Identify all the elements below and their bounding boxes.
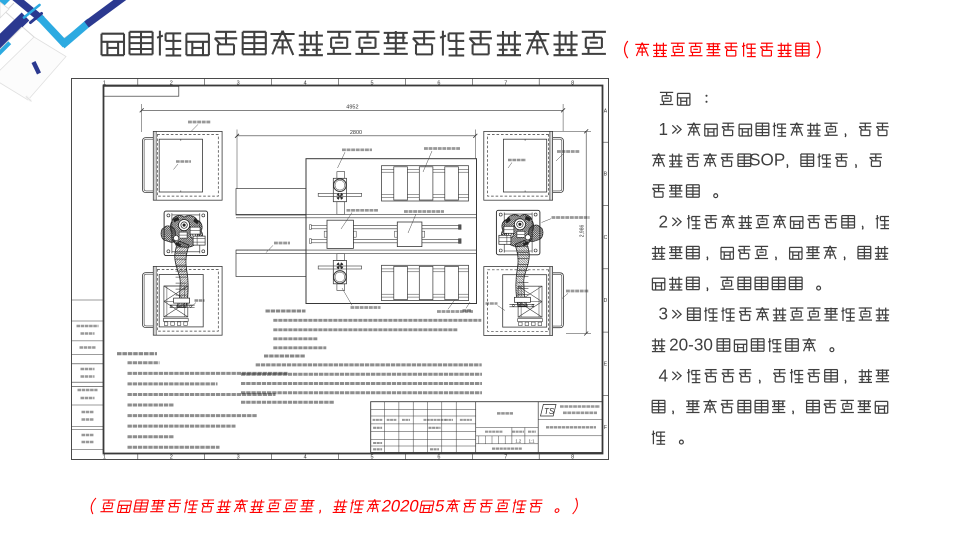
svg-text:6: 6 xyxy=(437,455,440,461)
svg-text:20-30: 20-30 xyxy=(669,336,713,355)
svg-text:1.2: 1.2 xyxy=(515,438,521,443)
svg-text:A: A xyxy=(604,108,608,114)
svg-text:8: 8 xyxy=(571,80,574,86)
svg-text:5: 5 xyxy=(433,496,446,515)
svg-text:1: 1 xyxy=(103,80,106,86)
svg-text:5: 5 xyxy=(370,455,373,461)
svg-text:SOP: SOP xyxy=(749,151,785,170)
svg-text:4: 4 xyxy=(304,80,307,86)
svg-text:1: 1 xyxy=(659,120,669,139)
svg-text:5: 5 xyxy=(370,80,373,86)
svg-text:2800: 2800 xyxy=(350,130,362,136)
svg-text:2: 2 xyxy=(170,455,173,461)
svg-text:7: 7 xyxy=(504,455,507,461)
svg-text:4: 4 xyxy=(304,455,307,461)
svg-text:2020: 2020 xyxy=(380,496,421,515)
svg-text:C: C xyxy=(604,235,608,241)
svg-text:7: 7 xyxy=(504,80,507,86)
svg-text:6: 6 xyxy=(437,80,440,86)
svg-text:4952: 4952 xyxy=(346,104,358,110)
svg-text:1: 1 xyxy=(103,455,106,461)
svg-text:2,986: 2,986 xyxy=(579,225,585,238)
svg-text:1:1: 1:1 xyxy=(529,438,535,443)
svg-text:4: 4 xyxy=(659,366,669,385)
svg-text:2: 2 xyxy=(170,80,173,86)
svg-text:B: B xyxy=(604,172,608,178)
svg-text:E: E xyxy=(604,362,608,368)
svg-text:3: 3 xyxy=(237,80,240,86)
svg-text:F: F xyxy=(604,425,607,431)
svg-text:2: 2 xyxy=(659,212,669,231)
svg-text:TS: TS xyxy=(544,407,555,416)
svg-text:3: 3 xyxy=(237,455,240,461)
svg-text:3: 3 xyxy=(659,305,669,324)
svg-text:D: D xyxy=(604,298,608,304)
svg-text:8: 8 xyxy=(571,455,574,461)
